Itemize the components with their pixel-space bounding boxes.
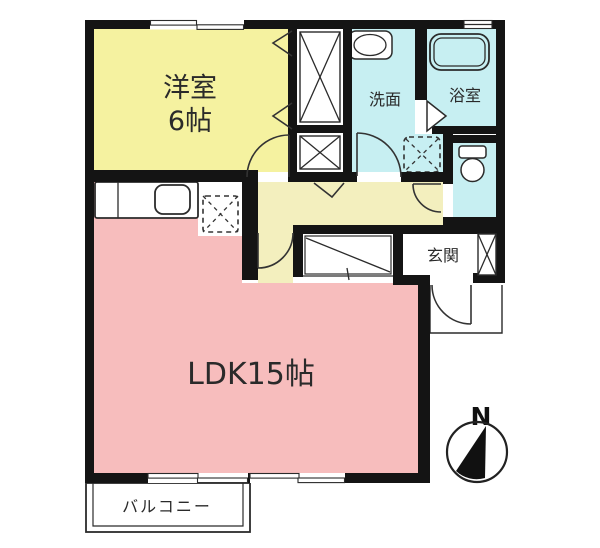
wall-left — [85, 20, 94, 483]
floorplan-svg: 洋室 6帖 LDK15帖 洗面 浴室 玄関 バルコニー N — [0, 0, 600, 548]
label-washroom: 洗面 — [369, 90, 401, 109]
wall-ldk-east — [418, 275, 430, 483]
wall-hallway-north-left — [288, 172, 357, 182]
window-ldk-south-right — [250, 473, 345, 483]
wall-western-south — [94, 170, 258, 182]
label-western-size: 6帖 — [168, 106, 212, 137]
wall-closet-divider — [297, 125, 343, 133]
closet-tall — [297, 29, 343, 125]
compass-north-label: N — [471, 402, 492, 431]
window-western-north — [150, 20, 244, 30]
wall-washroom-bathroom — [415, 20, 427, 100]
label-balcony: バルコニー — [122, 497, 212, 516]
wall-toilet-south — [443, 217, 496, 227]
wall-closet-washroom — [343, 20, 352, 182]
floorplan-page: 洋室 6帖 LDK15帖 洗面 浴室 玄関 バルコニー N — [0, 0, 600, 548]
shoe-cabinet — [478, 234, 496, 275]
label-ldk: LDK15帖 — [187, 357, 315, 392]
wall-top — [85, 20, 505, 29]
label-western-room: 洋室 — [163, 73, 217, 104]
wall-right — [496, 20, 505, 283]
closet-small — [297, 133, 343, 172]
hallway-floor — [258, 182, 443, 225]
window-ldk-south-left — [148, 473, 248, 483]
hallway-ldk-doorway-floor — [258, 225, 293, 283]
window-bathroom-north — [464, 21, 492, 29]
wall-toilet-north — [450, 135, 496, 143]
label-bathroom: 浴室 — [449, 86, 481, 105]
wall-closet-west — [293, 225, 303, 277]
washbasin — [349, 31, 392, 59]
toilet-fixture — [459, 146, 486, 182]
wall-bathroom-south — [432, 126, 496, 134]
fridge-alcove-floor — [198, 182, 242, 236]
wall-kitchen-hallway — [242, 170, 258, 280]
kitchen-sink — [155, 185, 190, 214]
label-entrance: 玄関 — [427, 246, 459, 265]
kitchen-unit — [95, 182, 198, 218]
